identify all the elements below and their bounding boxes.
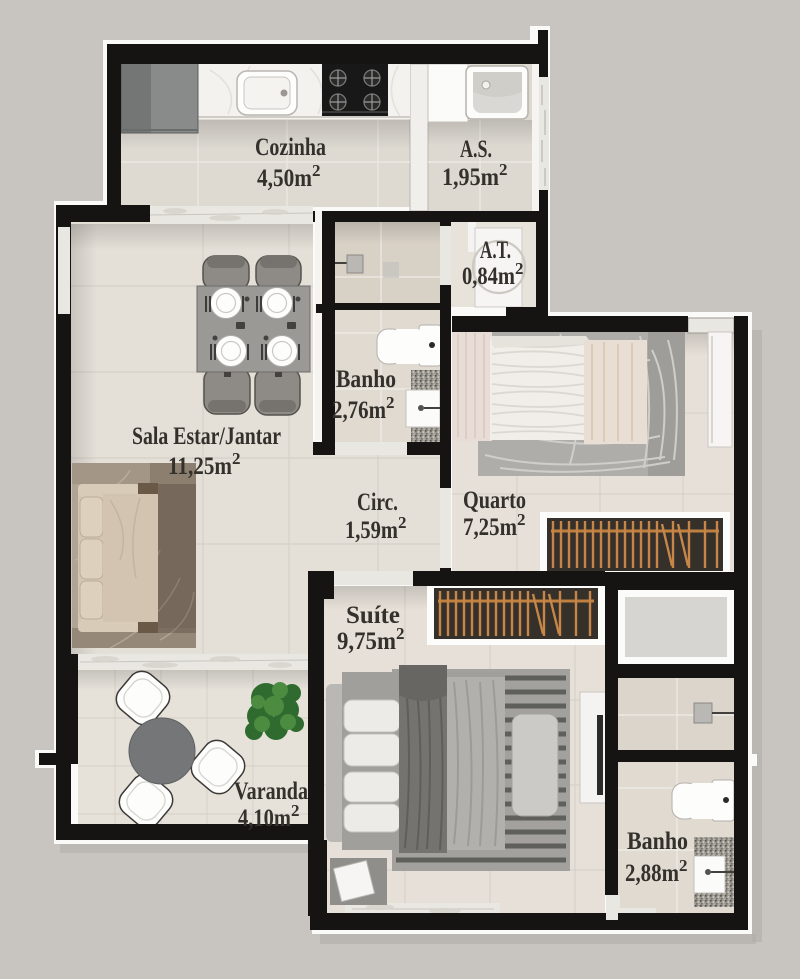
svg-text:2: 2 [517, 510, 526, 529]
svg-text:Sala Estar/Jantar: Sala Estar/Jantar [132, 423, 281, 450]
svg-text:0,84m: 0,84m [462, 263, 515, 290]
svg-text:2: 2 [312, 161, 321, 180]
svg-text:Circ.: Circ. [357, 489, 398, 516]
svg-text:2: 2 [679, 856, 688, 875]
svg-text:2: 2 [396, 624, 405, 643]
svg-text:7,25m: 7,25m [463, 514, 517, 541]
svg-text:2: 2 [386, 393, 395, 412]
svg-text:A.T.: A.T. [480, 237, 511, 264]
svg-text:Banho: Banho [336, 366, 396, 393]
svg-text:2,88m: 2,88m [625, 860, 679, 887]
svg-text:2: 2 [232, 449, 241, 468]
svg-text:Banho: Banho [627, 828, 688, 855]
svg-text:Cozinha: Cozinha [255, 134, 326, 161]
svg-text:Suíte: Suíte [346, 602, 400, 629]
svg-text:4,50m: 4,50m [257, 165, 312, 192]
svg-text:A.S.: A.S. [460, 136, 492, 163]
svg-text:2: 2 [291, 801, 300, 820]
svg-text:9,75m: 9,75m [337, 628, 396, 655]
svg-text:1,59m: 1,59m [345, 517, 398, 544]
svg-text:2,76m: 2,76m [332, 397, 386, 424]
svg-text:1,95m: 1,95m [442, 164, 499, 191]
svg-text:2: 2 [499, 160, 508, 179]
svg-text:2: 2 [515, 259, 524, 278]
svg-text:2: 2 [398, 513, 407, 532]
svg-text:4,10m: 4,10m [238, 805, 291, 832]
svg-text:11,25m: 11,25m [168, 453, 232, 480]
